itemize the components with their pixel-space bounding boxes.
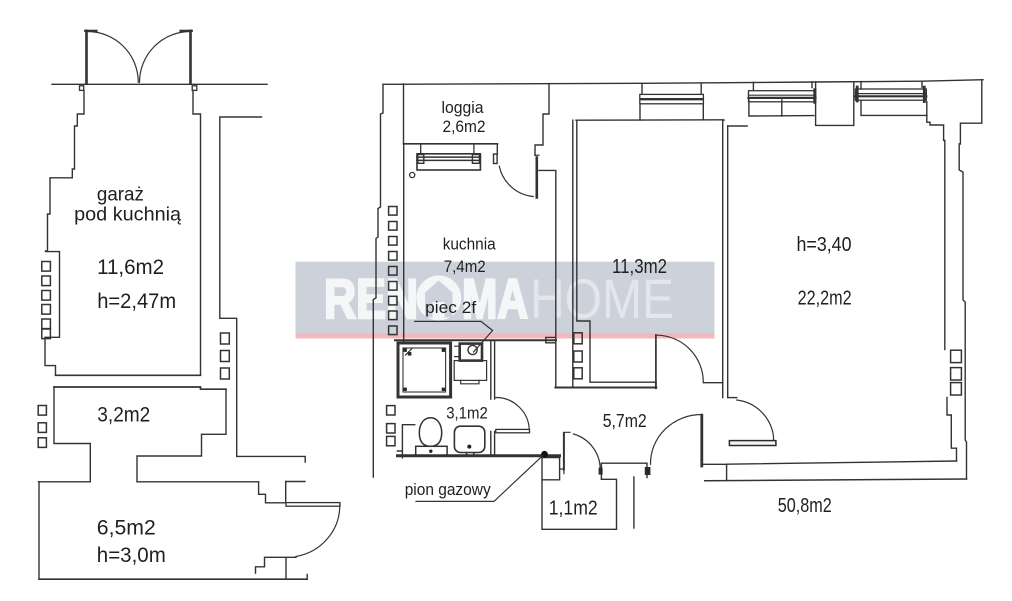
svg-text:5,7m2: 5,7m2: [603, 410, 647, 431]
svg-text:3,1m2: 3,1m2: [446, 405, 488, 423]
svg-text:11,6m2: 11,6m2: [97, 255, 164, 279]
svg-text:3,2m2: 3,2m2: [97, 403, 150, 427]
svg-text:loggia: loggia: [442, 99, 485, 117]
svg-text:50,8m2: 50,8m2: [778, 495, 832, 517]
svg-text:piec 2f: piec 2f: [425, 299, 476, 317]
svg-text:kuchnia: kuchnia: [443, 236, 497, 254]
svg-text:garaż: garaż: [97, 185, 144, 206]
svg-text:pod kuchnią: pod kuchnią: [74, 205, 181, 226]
svg-text:h=2,47m: h=2,47m: [97, 289, 176, 313]
svg-text:6,5m2: 6,5m2: [97, 516, 156, 540]
svg-text:h=3,0m: h=3,0m: [97, 543, 166, 567]
svg-text:pion gazowy: pion gazowy: [405, 480, 491, 499]
svg-text:7,4m2: 7,4m2: [444, 258, 486, 276]
svg-text:2,6m2: 2,6m2: [443, 118, 486, 136]
svg-text:11,3m2: 11,3m2: [612, 256, 667, 278]
svg-text:1,1m2: 1,1m2: [549, 498, 598, 520]
svg-text:h=3,40: h=3,40: [797, 234, 852, 256]
svg-text:22,2m2: 22,2m2: [798, 288, 852, 310]
